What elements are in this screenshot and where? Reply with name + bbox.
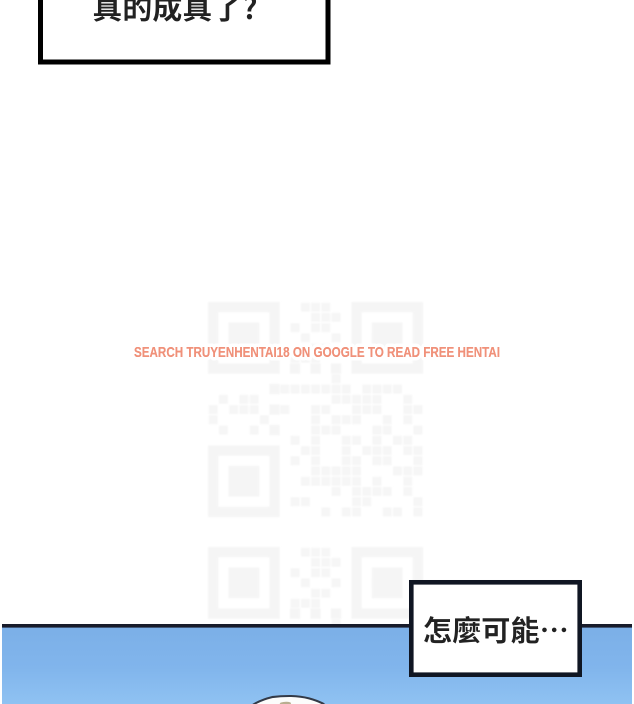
svg-text:SEARCH TRUYENHENTAI18 ON GOOGL: SEARCH TRUYENHENTAI18 ON GOOGLE TO READ … (134, 345, 500, 361)
